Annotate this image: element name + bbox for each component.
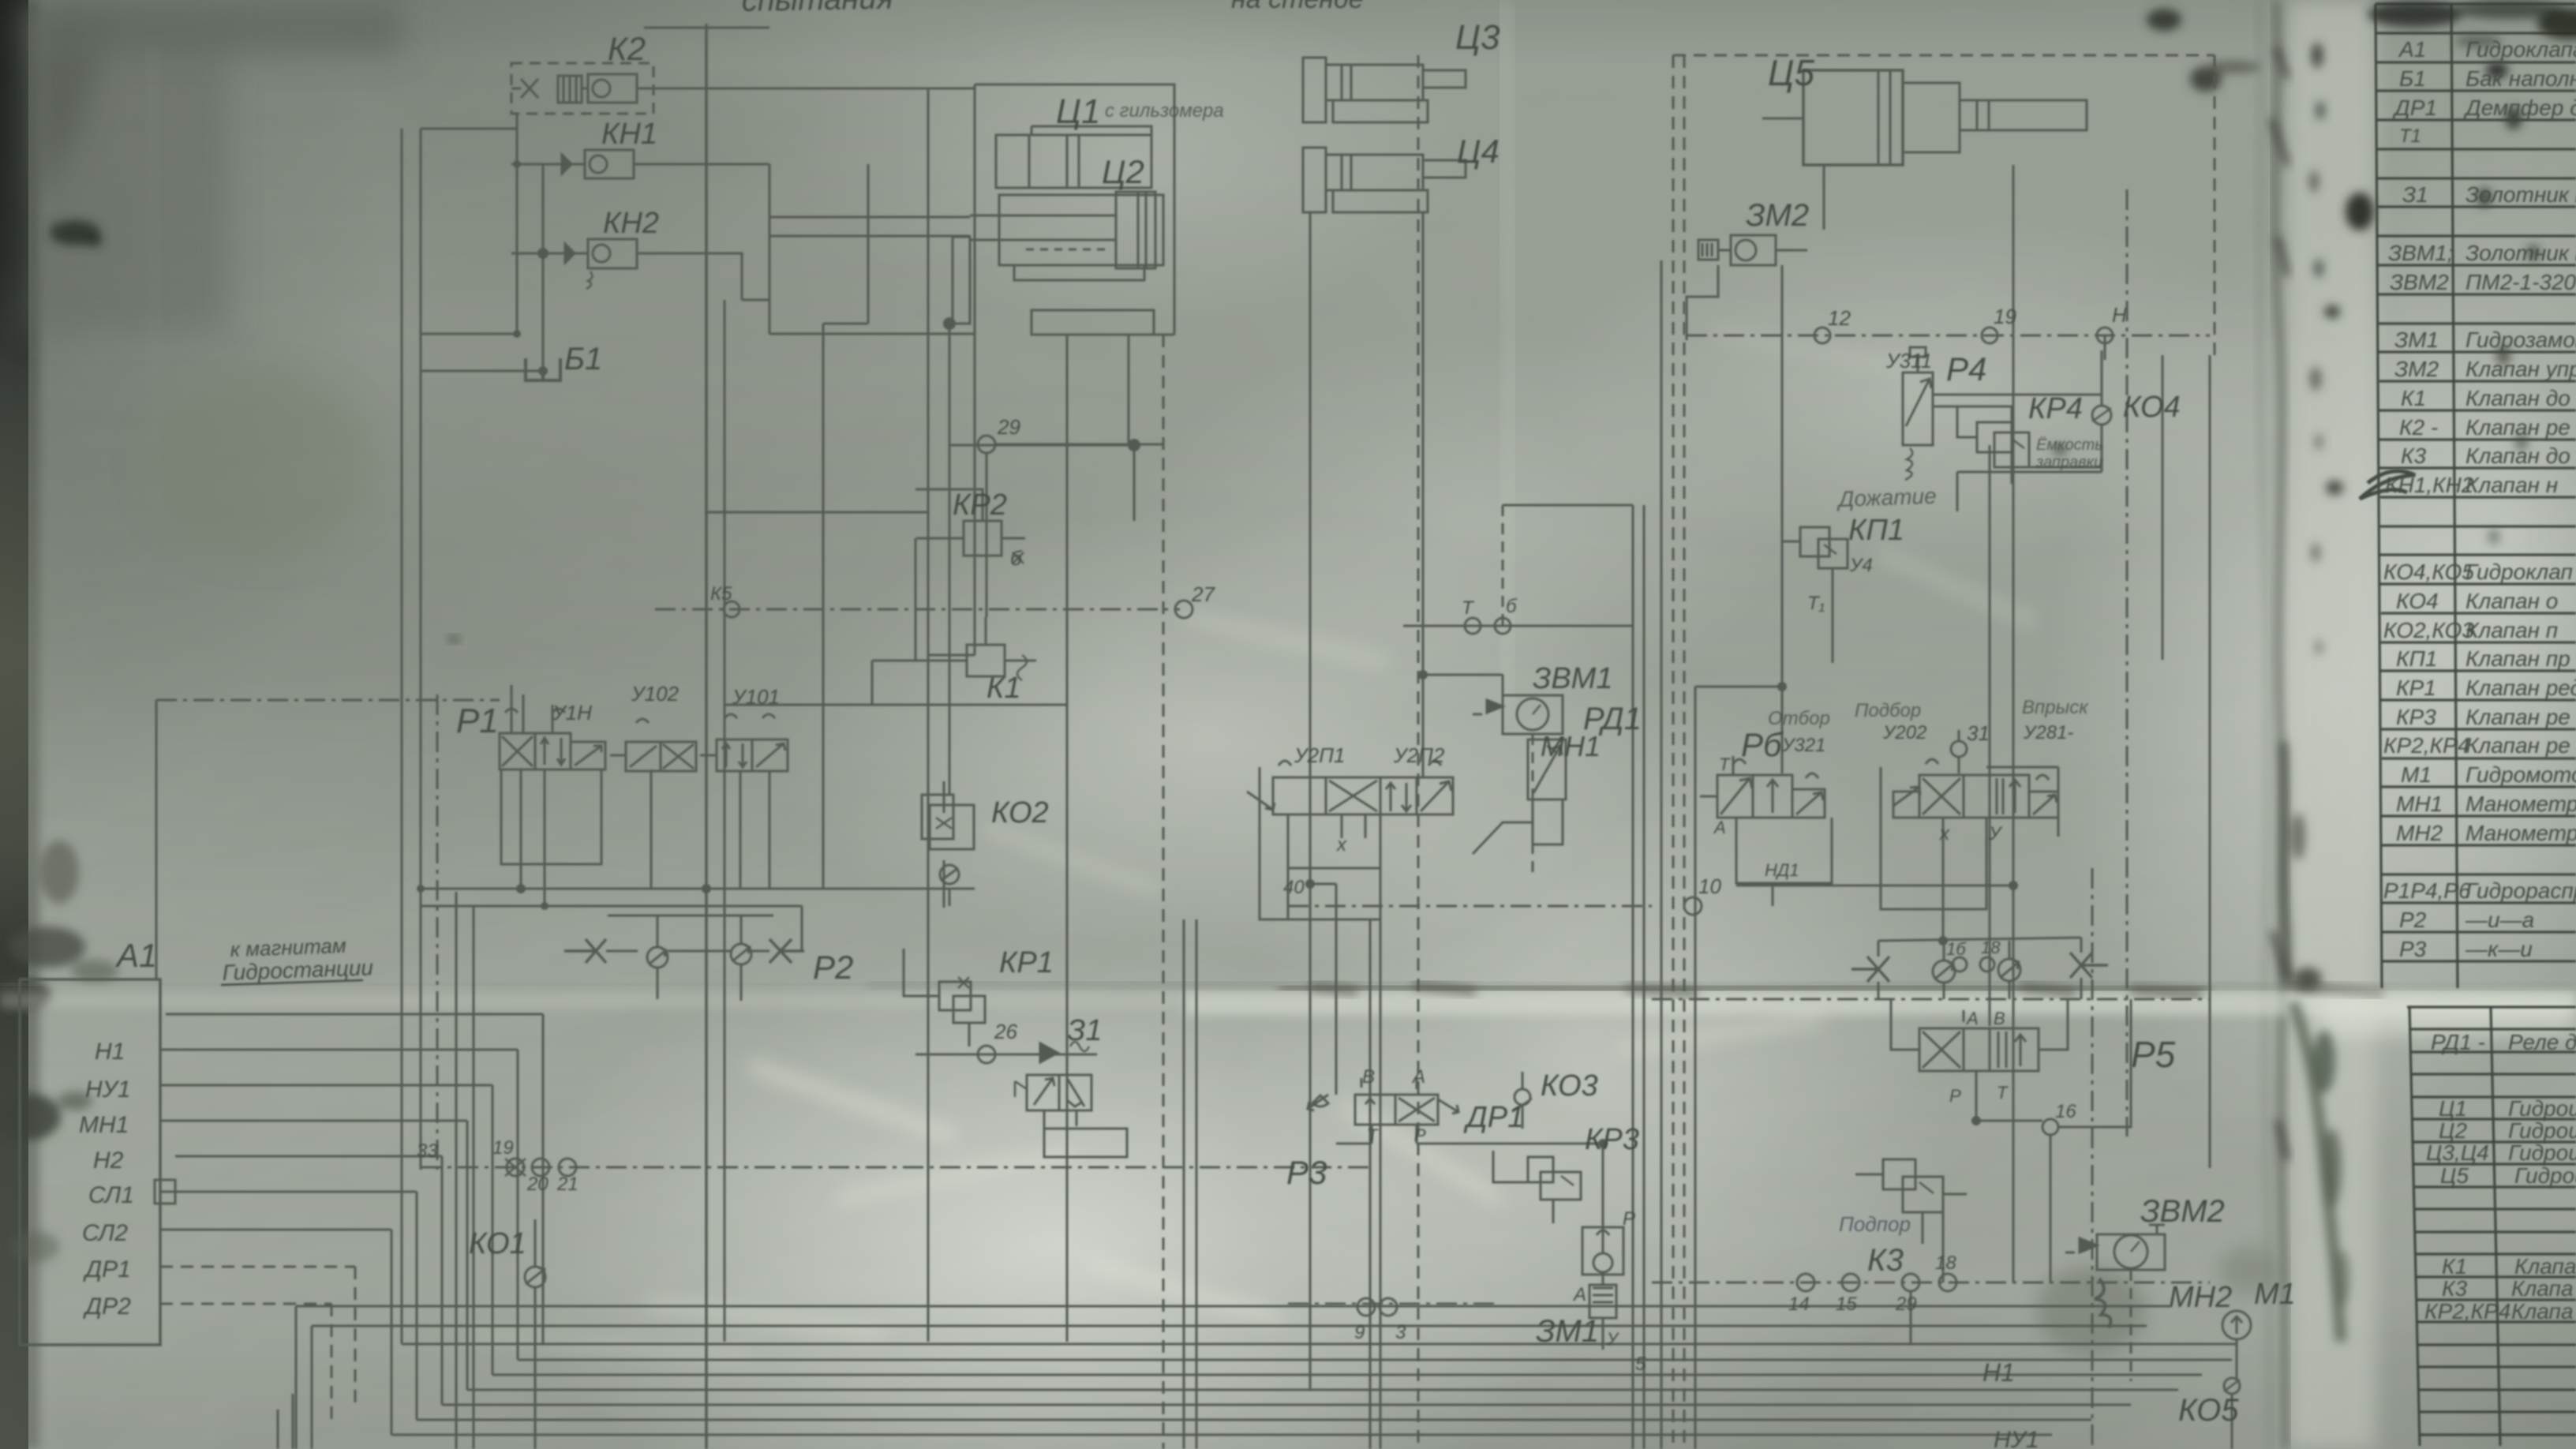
svg-text:М1: М1: [2401, 762, 2432, 787]
svg-text:Клапа: Клапа: [2514, 1254, 2576, 1279]
svg-text:х: х: [1939, 823, 1950, 844]
svg-text:16: 16: [2055, 1101, 2076, 1122]
svg-text:Гидрораспр: Гидрораспр: [2466, 878, 2576, 903]
svg-text:У202: У202: [1882, 722, 1926, 743]
svg-text:9: 9: [1354, 1322, 1365, 1343]
svg-text:СЛ2: СЛ2: [82, 1220, 128, 1246]
svg-text:КН1: КН1: [601, 118, 657, 151]
svg-text:Гидрозамок: Гидрозамок: [2466, 328, 2576, 352]
svg-text:ЗМ1: ЗМ1: [2394, 328, 2439, 352]
svg-text:Гидроклап: Гидроклап: [2466, 560, 2573, 584]
svg-text:У: У: [1606, 1329, 1619, 1349]
svg-text:З1: З1: [1067, 1014, 1102, 1047]
svg-text:на стенде: на стенде: [1231, 0, 1364, 14]
svg-text:Т: Т: [1462, 597, 1475, 619]
svg-text:НУ1: НУ1: [85, 1076, 131, 1103]
svg-text:27: 27: [1191, 582, 1215, 606]
svg-text:Гидромото: Гидромото: [2466, 762, 2576, 787]
svg-text:Р: Р: [1414, 1125, 1426, 1145]
svg-text:КР1: КР1: [2396, 676, 2436, 700]
svg-text:К5: К5: [710, 583, 732, 605]
svg-text:Р1Р4,Р6: Р1Р4,Р6: [2383, 878, 2471, 903]
svg-text:ЗВМ1: ЗВМ1: [1533, 662, 1612, 695]
svg-text:Н: Н: [2112, 303, 2127, 327]
svg-text:Т1: Т1: [2399, 125, 2421, 147]
svg-text:У102: У102: [631, 682, 680, 706]
svg-text:З1: З1: [2402, 182, 2428, 207]
svg-text:К2 -: К2 -: [2399, 415, 2438, 440]
svg-text:РД1 -: РД1 -: [2431, 1030, 2485, 1054]
svg-text:ЗВМ2: ЗВМ2: [2390, 270, 2449, 294]
svg-text:У4: У4: [1849, 555, 1873, 576]
svg-text:Клапа: Клапа: [2511, 1299, 2574, 1324]
svg-text:МН2: МН2: [2396, 821, 2443, 845]
svg-text:Ц2: Ц2: [1102, 153, 1144, 190]
svg-text:КР3: КР3: [2396, 705, 2436, 729]
svg-text:А1: А1: [114, 937, 157, 974]
svg-text:СЛ1: СЛ1: [88, 1182, 134, 1208]
svg-text:Р1: Р1: [456, 702, 499, 740]
svg-text:У281-: У281-: [2023, 722, 2073, 743]
svg-text:МН2: МН2: [2169, 1281, 2232, 1314]
svg-text:ЗМ2: ЗМ2: [2394, 357, 2439, 381]
svg-text:Ёмкость: Ёмкость: [2036, 436, 2103, 454]
svg-text:Р2: Р2: [2399, 908, 2427, 932]
svg-text:Клапан н: Клапан н: [2466, 473, 2558, 497]
svg-text:КР1: КР1: [999, 946, 1054, 979]
svg-text:У1Н: У1Н: [552, 701, 592, 724]
svg-text:ДР1: ДР1: [1463, 1101, 1524, 1134]
svg-text:Гидроц: Гидроц: [2514, 1163, 2576, 1188]
svg-text:А: А: [1572, 1284, 1586, 1305]
svg-text:с гильзомера: с гильзомера: [1105, 100, 1224, 122]
svg-text:18: 18: [1935, 1252, 1956, 1274]
svg-text:КР2: КР2: [953, 489, 1007, 522]
svg-text:МН1: МН1: [2396, 792, 2443, 816]
svg-text:10: 10: [1698, 874, 1721, 898]
svg-text:Ц4: Ц4: [1457, 133, 1500, 170]
svg-text:В: В: [1362, 1066, 1375, 1088]
svg-text:Р4: Р4: [1946, 350, 1986, 388]
svg-text:б: б: [1010, 546, 1023, 570]
svg-text:КО1: КО1: [469, 1227, 526, 1260]
svg-text:К3: К3: [2442, 1276, 2468, 1301]
svg-text:—и—а: —и—а: [2465, 908, 2534, 932]
svg-text:Манометр: Манометр: [2466, 792, 2576, 816]
svg-text:А: А: [1965, 1009, 1979, 1028]
svg-text:А: А: [1713, 818, 1726, 837]
svg-text:спытания: спытания: [741, 0, 893, 18]
svg-text:НУ1: НУ1: [1994, 1427, 2039, 1449]
svg-text:Клапан ре: Клапан ре: [2466, 733, 2570, 758]
svg-text:Гидроци: Гидроци: [2508, 1096, 2576, 1121]
svg-text:Клапан ре: Клапан ре: [2466, 705, 2570, 729]
svg-text:29: 29: [997, 415, 1020, 439]
svg-text:заправки: заправки: [2035, 454, 2102, 471]
svg-text:—к—и: —к—и: [2465, 937, 2533, 961]
svg-text:Ц5: Ц5: [2440, 1163, 2469, 1188]
svg-text:Клапан о: Клапан о: [2466, 589, 2558, 613]
svg-text:19: 19: [1994, 305, 2016, 328]
svg-text:У311: У311: [1885, 349, 1932, 373]
svg-text:15: 15: [1836, 1294, 1857, 1315]
svg-text:Ц3,Ц4: Ц3,Ц4: [2426, 1140, 2489, 1165]
svg-text:К3: К3: [2401, 444, 2427, 468]
svg-text:КО5: КО5: [2178, 1393, 2239, 1428]
svg-text:19: 19: [492, 1137, 514, 1159]
svg-text:Рб: Рб: [1741, 726, 1783, 763]
svg-text:КП1: КП1: [1848, 514, 1904, 547]
svg-text:ДР1: ДР1: [2392, 95, 2437, 120]
svg-text:Р5: Р5: [2131, 1034, 2176, 1075]
svg-text:Ц5: Ц5: [1768, 52, 1814, 93]
svg-text:40: 40: [1283, 877, 1305, 898]
svg-text:Золотник н: Золотник н: [2466, 182, 2576, 207]
svg-text:Ц3: Ц3: [1455, 18, 1500, 57]
svg-text:У101: У101: [732, 685, 780, 709]
svg-text:А1: А1: [2398, 37, 2426, 62]
svg-text:Клапан п: Клапан п: [2466, 618, 2558, 642]
svg-text:Р: Р: [1949, 1086, 1961, 1106]
svg-text:К3: К3: [1867, 1243, 1904, 1278]
svg-text:М1: М1: [2254, 1278, 2296, 1311]
svg-text:Р2: Р2: [813, 949, 853, 986]
svg-text:31: 31: [1967, 721, 1990, 745]
svg-text:У321: У321: [1781, 735, 1825, 756]
svg-text:Клапан ре: Клапан ре: [2466, 415, 2570, 440]
svg-text:12: 12: [1828, 306, 1851, 330]
svg-text:У: У: [1988, 823, 2003, 844]
svg-text:Гидроци: Гидроци: [2508, 1118, 2576, 1143]
svg-text:Т: Т: [1367, 1125, 1379, 1145]
svg-text:Н1: Н1: [95, 1039, 125, 1065]
svg-text:Демпфер д: Демпфер д: [2463, 95, 2576, 120]
svg-text:ЗМ1: ЗМ1: [1536, 1314, 1599, 1349]
svg-text:НД1: НД1: [1765, 860, 1799, 880]
svg-text:КР2,КР4: КР2,КР4: [2424, 1299, 2510, 1324]
svg-text:КР3: КР3: [1585, 1123, 1639, 1156]
svg-text:Н1: Н1: [1983, 1358, 2015, 1387]
svg-text:21: 21: [556, 1174, 578, 1195]
svg-text:Р: Р: [1623, 1208, 1635, 1230]
svg-text:Б1: Б1: [564, 342, 602, 376]
svg-text:Клапан до: Клапан до: [2466, 444, 2570, 468]
svg-text:КР4: КР4: [2028, 392, 2083, 425]
svg-text:КО2: КО2: [991, 796, 1049, 829]
svg-text:Реле дав: Реле дав: [2508, 1030, 2576, 1054]
svg-text:КО2,КО3: КО2,КО3: [2383, 618, 2474, 642]
svg-text:Т: Т: [1997, 1083, 2009, 1103]
svg-text:КП1: КП1: [2396, 646, 2437, 671]
svg-text:Р3: Р3: [2399, 937, 2427, 961]
svg-text:Клапан до: Клапан до: [2466, 386, 2570, 410]
svg-text:б: б: [1506, 596, 1518, 617]
svg-text:Клапа: Клапа: [2511, 1276, 2574, 1301]
svg-text:ЗВМ1;: ЗВМ1;: [2388, 241, 2454, 265]
svg-text:К2: К2: [608, 30, 646, 67]
svg-text:У2П1: У2П1: [1294, 743, 1345, 767]
svg-text:14: 14: [1788, 1294, 1810, 1315]
svg-text:Манометр: Манометр: [2466, 821, 2576, 845]
svg-text:МН1: МН1: [79, 1112, 129, 1138]
svg-text:Б1: Б1: [2399, 66, 2426, 91]
svg-text:КО4: КО4: [2123, 391, 2181, 424]
svg-text:Бак наполне: Бак наполне: [2466, 66, 2576, 91]
svg-text:Ц1: Ц1: [2439, 1096, 2467, 1121]
svg-text:К1: К1: [2442, 1254, 2467, 1279]
svg-text:Р3: Р3: [1286, 1154, 1327, 1191]
svg-text:КО4,КО5: КО4,КО5: [2383, 560, 2474, 584]
svg-text:3: 3: [1395, 1322, 1406, 1343]
svg-text:ДР1: ДР1: [83, 1256, 131, 1282]
svg-text:КО3: КО3: [1541, 1069, 1598, 1103]
svg-text:ДР2: ДР2: [83, 1294, 131, 1320]
svg-text:КО4: КО4: [2396, 589, 2439, 613]
svg-text:К1: К1: [2401, 386, 2426, 410]
svg-text:КР2,КР4: КР2,КР4: [2383, 733, 2469, 758]
svg-text:1б: 1б: [1946, 939, 1967, 959]
svg-text:Подбор: Подбор: [1855, 700, 1921, 721]
svg-text:КН2: КН2: [603, 207, 659, 240]
svg-text:У2П2: У2П2: [1393, 743, 1445, 767]
svg-text:Ц2: Ц2: [2439, 1118, 2467, 1143]
svg-text:Н2: Н2: [93, 1148, 124, 1174]
svg-text:Дожатие: Дожатие: [1836, 484, 1937, 511]
svg-text:Т: Т: [1719, 754, 1731, 774]
svg-text:Подпор: Подпор: [1839, 1212, 1911, 1236]
svg-text:х: х: [1336, 834, 1347, 856]
svg-text:Т₁: Т₁: [1807, 593, 1825, 614]
svg-text:Золотник вк: Золотник вк: [2466, 241, 2576, 265]
svg-text:Ц1: Ц1: [1056, 92, 1100, 131]
svg-text:ЗВМ2: ЗВМ2: [2140, 1194, 2225, 1229]
svg-text:20: 20: [526, 1174, 549, 1195]
svg-text:ЗМ2: ЗМ2: [1746, 198, 1809, 233]
svg-text:Клапан упр: Клапан упр: [2466, 357, 2576, 381]
svg-text:18: 18: [1981, 938, 2001, 957]
svg-text:33: 33: [417, 1140, 438, 1162]
svg-text:29: 29: [1895, 1294, 1917, 1315]
svg-text:ПМ2-1-320: ПМ2-1-320: [2466, 270, 2576, 294]
svg-text:Впрыск: Впрыск: [2022, 697, 2089, 718]
svg-text:В: В: [1994, 1009, 2005, 1028]
svg-text:5: 5: [1635, 1354, 1646, 1375]
svg-text:Клапан ред: Клапан ред: [2466, 676, 2576, 700]
svg-text:А: А: [1411, 1066, 1425, 1088]
svg-text:Гидроклапан: Гидроклапан: [2466, 37, 2576, 62]
svg-text:Гидроци: Гидроци: [2508, 1140, 2576, 1165]
svg-text:РД1: РД1: [1583, 702, 1642, 736]
svg-text:26: 26: [994, 1020, 1017, 1043]
svg-text:К1: К1: [987, 672, 1021, 705]
svg-text:Клапан пр: Клапан пр: [2466, 646, 2570, 671]
